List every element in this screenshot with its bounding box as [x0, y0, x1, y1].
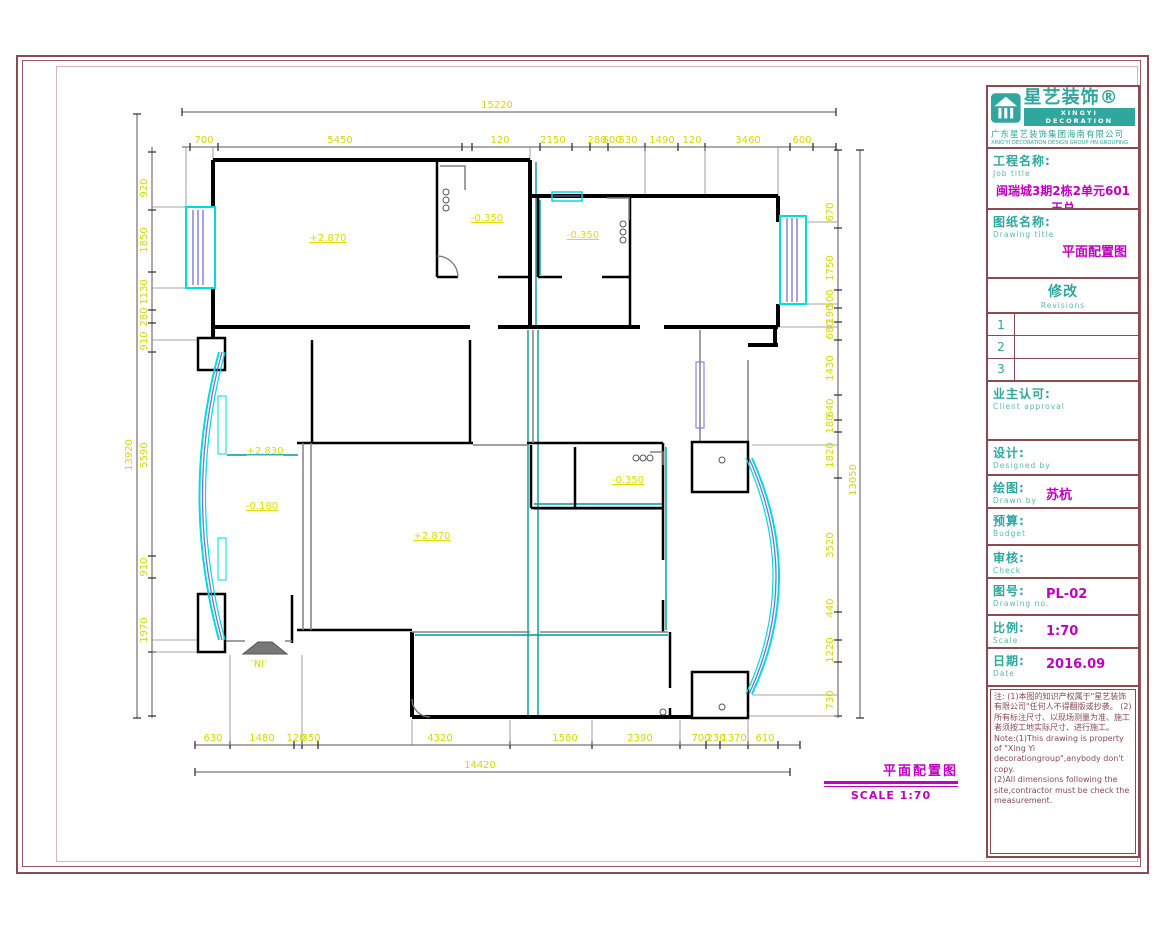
- budget-label-en: Budget: [993, 529, 1133, 538]
- dim-label: 3520: [825, 532, 836, 557]
- dim-label: 120: [490, 135, 509, 146]
- company-name-cn: 广东星艺装饰集团海南有限公司: [991, 128, 1135, 140]
- entrance-marker: .IN.: [243, 642, 287, 668]
- job-title-section: 工程名称: Job title 闽瑞城3期2栋2单元601王总: [988, 149, 1138, 210]
- dim-label: 440: [825, 598, 836, 617]
- notes-section: 注: (1)本图的知识产权属于"星艺装饰有限公司"任何人不得翻版或抄袭。 (2)…: [988, 687, 1138, 856]
- client-approval-section: 业主认可: Client approval: [988, 382, 1138, 441]
- revision-row-number: 3: [988, 359, 1015, 380]
- designed-by-label-en: Designed by: [993, 461, 1133, 470]
- job-title-value: 闽瑞城3期2栋2单元601王总: [993, 182, 1133, 210]
- revision-row-blank: [1015, 359, 1138, 380]
- dim-label: 1480: [249, 733, 274, 744]
- dim-label: 120: [682, 135, 701, 146]
- dim-label: 3460: [735, 135, 760, 146]
- dim-label: 5450: [327, 135, 352, 146]
- dim-total-top: 15220: [481, 100, 513, 111]
- dim-label: 1970: [139, 617, 150, 642]
- revisions-table: 1 2 3: [988, 314, 1138, 382]
- walls-light: [225, 166, 748, 641]
- dim-label: 670: [825, 202, 836, 221]
- level-label: +2.830: [246, 446, 283, 457]
- brand-name-en: XINGYI DECORATION: [1024, 108, 1135, 126]
- dim-label: 600: [792, 135, 811, 146]
- revision-row-number: 2: [988, 336, 1015, 357]
- walls-interior: [292, 162, 670, 717]
- dim-label: 350: [301, 733, 320, 744]
- dim-label: 680: [825, 320, 836, 339]
- brand-name-cn: 星艺装饰®: [1024, 89, 1135, 107]
- dim-label: 920: [139, 178, 150, 197]
- dim-label: 2150: [540, 135, 565, 146]
- drawing-title-value: 平面配置图: [993, 241, 1133, 260]
- dim-labels-bottom: 14420 630 1480 120 350 4320 1580 2390 70…: [203, 733, 774, 771]
- date-value: 2016.09: [1046, 657, 1105, 672]
- dim-label: 1490: [649, 135, 674, 146]
- title-block-logo-section: 星艺装饰® XINGYI DECORATION 广东星艺装饰集团海南有限公司 X…: [988, 87, 1138, 149]
- floor-plan: .IN. +2.870 -0.350 -0.350 +2.830 -0.180 …: [60, 70, 980, 830]
- drawing-no-value: PL-02: [1046, 587, 1087, 602]
- level-label: -0.180: [246, 501, 278, 512]
- dim-label: 2390: [627, 733, 652, 744]
- notes-cn: 注: (1)本图的知识产权属于"星艺装饰有限公司"任何人不得翻版或抄袭。 (2)…: [994, 692, 1132, 734]
- entrance-label: .IN.: [251, 657, 268, 668]
- check-label-cn: 审核:: [993, 549, 1133, 566]
- drawing-title-section: 图纸名称: Drawing title 平面配置图: [988, 210, 1138, 279]
- dim-labels-top: 15220 700 5450 120 2150 280 600 530 1490…: [194, 100, 811, 146]
- notes-text-box: 注: (1)本图的知识产权属于"星艺装饰有限公司"任何人不得翻版或抄袭。 (2)…: [990, 689, 1136, 854]
- date-section: 日期: Date 2016.09: [988, 649, 1138, 687]
- revision-row-blank: [1015, 314, 1138, 335]
- revision-row-blank: [1015, 336, 1138, 357]
- dim-label: 610: [755, 733, 774, 744]
- dim-label: 5590: [139, 442, 150, 467]
- dim-label: 730: [825, 690, 836, 709]
- revision-row-number: 1: [988, 314, 1015, 335]
- level-label: -0.350: [567, 230, 599, 241]
- dim-label: 1580: [552, 733, 577, 744]
- designed-by-label-cn: 设计:: [993, 444, 1133, 461]
- revisions-header: 修改 Revisions: [988, 279, 1138, 314]
- revisions-label-cn: 修改: [988, 281, 1138, 301]
- dim-label: 630: [203, 733, 222, 744]
- dim-label: 910: [139, 557, 150, 576]
- dim-label: 1750: [825, 255, 836, 280]
- level-label: -0.350: [612, 475, 644, 486]
- level-label: +2.870: [413, 531, 450, 542]
- budget-section: 预算: Budget: [988, 509, 1138, 546]
- dim-label: 1820: [825, 442, 836, 467]
- drawn-by-value: 苏杭: [1046, 484, 1072, 503]
- drawing-title-label-en: Drawing title: [993, 230, 1133, 239]
- dim-label: 1130: [139, 279, 150, 304]
- budget-label-cn: 预算:: [993, 512, 1133, 529]
- dim-label: 180: [825, 414, 836, 433]
- company-name-en: XING'YI DECORATION DESIGN GROUP HN.GROUP…: [991, 140, 1128, 146]
- designed-by-section: 设计: Designed by: [988, 441, 1138, 476]
- dim-label: 280: [139, 307, 150, 326]
- drawing-sheet: .IN. +2.870 -0.350 -0.350 +2.830 -0.180 …: [0, 0, 1159, 927]
- dim-label: 700: [194, 135, 213, 146]
- dim-label: 4320: [427, 733, 452, 744]
- dimension-lines: [137, 112, 860, 772]
- plan-caption-scale: SCALE 1:70: [824, 789, 958, 802]
- level-labels: +2.870 -0.350 -0.350 +2.830 -0.180 +2.87…: [246, 213, 644, 542]
- check-label-en: Check: [993, 566, 1133, 575]
- revisions-label-en: Revisions: [988, 301, 1138, 310]
- check-section: 审核: Check: [988, 546, 1138, 579]
- revision-row: 3: [988, 359, 1138, 380]
- scale-section: 比例: Scale 1:70: [988, 616, 1138, 649]
- dim-label: 1220: [825, 637, 836, 662]
- drawn-by-section: 绘图: Drawn by 苏杭: [988, 476, 1138, 509]
- client-approval-label-en: Client approval: [993, 402, 1133, 411]
- caption-underline-thin: [824, 786, 958, 787]
- fixture-circles: [443, 189, 725, 715]
- dim-label: 910: [139, 331, 150, 350]
- notes-en-1: Note:(1)This drawing is property of "Xin…: [994, 734, 1132, 776]
- dim-total-left: 13920: [124, 439, 135, 471]
- walls-outer: [213, 160, 778, 717]
- balcony-right-curve: [746, 458, 779, 694]
- window-left-bay: [186, 207, 215, 288]
- job-title-label-en: Job title: [993, 169, 1133, 178]
- notes-en-2: (2)All dimensions following the site,con…: [994, 775, 1132, 806]
- title-block: 星艺装饰® XINGYI DECORATION 广东星艺装饰集团海南有限公司 X…: [986, 85, 1140, 858]
- dim-label: 1370: [721, 733, 746, 744]
- scale-value: 1:70: [1046, 624, 1078, 639]
- revision-row: 2: [988, 336, 1138, 358]
- dim-label: 1850: [139, 227, 150, 252]
- window-right-bay: [780, 216, 806, 304]
- drawing-title-label-cn: 图纸名称:: [993, 213, 1133, 230]
- plan-caption: 平面配置图 SCALE 1:70: [824, 760, 958, 802]
- job-title-label-cn: 工程名称:: [993, 152, 1133, 169]
- dim-label: 530: [618, 135, 637, 146]
- level-label: -0.350: [471, 213, 503, 224]
- plan-caption-title: 平面配置图: [824, 760, 958, 779]
- dim-total-right: 13050: [848, 464, 859, 496]
- dim-label: 1430: [825, 355, 836, 380]
- dim-total-bottom: 14420: [464, 760, 496, 771]
- revision-row: 1: [988, 314, 1138, 336]
- company-logo-icon: [991, 93, 1021, 123]
- drawing-no-section: 图号: Drawing no. PL-02: [988, 579, 1138, 616]
- client-approval-label-cn: 业主认可:: [993, 385, 1133, 402]
- level-label: +2.870: [309, 233, 346, 244]
- caption-underline-thick: [824, 781, 958, 784]
- dim-labels-right: 13050 670 1750 500 190 680 1430 640 180 …: [825, 202, 859, 709]
